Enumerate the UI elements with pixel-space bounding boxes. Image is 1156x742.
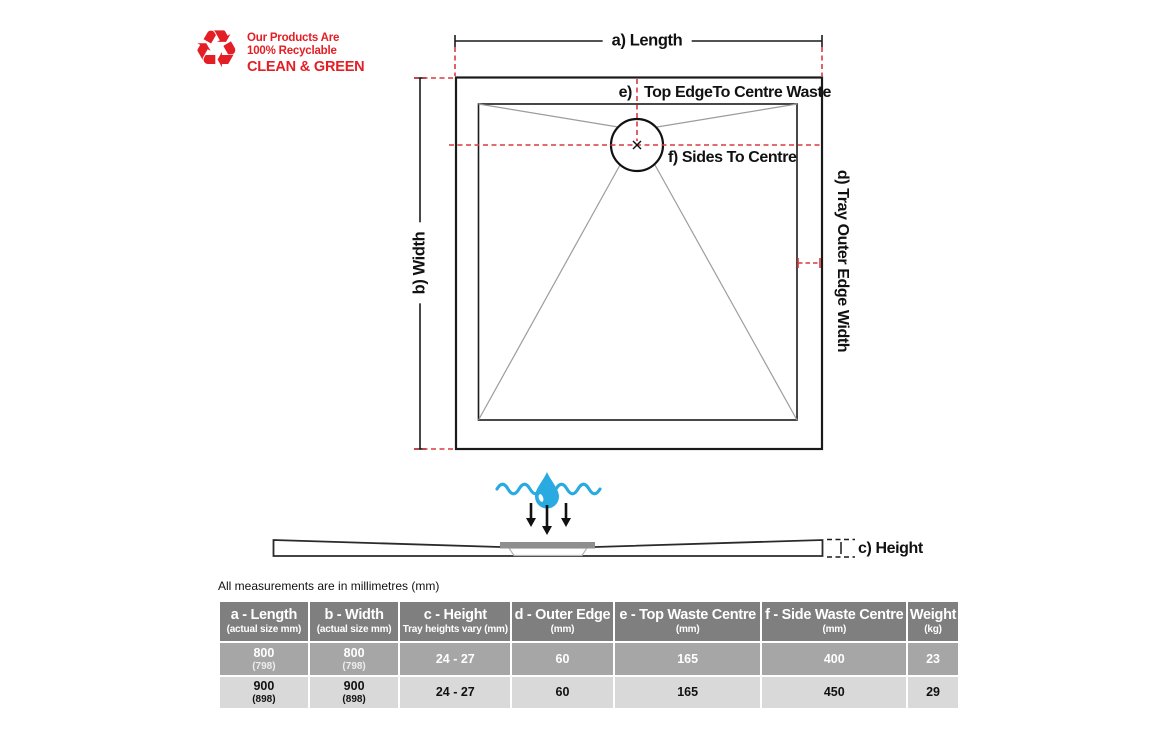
- cell-width-800: 800 (798): [309, 642, 400, 676]
- shower-tray-spec-sheet: ♻ Our Products Are 100% Recyclable CLEAN…: [0, 0, 1156, 742]
- waste-sump-outline: [509, 548, 587, 556]
- label-f-sides-to-centre: f) Sides To Centre: [668, 149, 797, 167]
- table-row-900: 900 (898) 900 (898) 24 - 27 60 165 450: [219, 676, 959, 709]
- col-header-weight: Weight (kg): [907, 601, 959, 642]
- cell-height-800: 24 - 27: [399, 642, 511, 676]
- recycle-claim-text: Our Products Are 100% Recyclable CLEAN &…: [247, 32, 364, 75]
- label-c-height: c) Height: [858, 540, 923, 558]
- waste-cover-bar: [500, 542, 595, 549]
- recycle-line-2: 100% Recyclable: [247, 45, 364, 58]
- label-d-tray-outer-edge-width: d) Tray Outer Edge Width: [833, 170, 851, 352]
- recycling-symbol-icon: ♻: [193, 24, 240, 76]
- label-e-top-edge-to-centre-waste: Top EdgeTo Centre Waste: [644, 84, 831, 102]
- col-header-b-width: b - Width (actual size mm): [309, 601, 400, 642]
- cell-weight-800: 23: [907, 642, 959, 676]
- cell-top-waste-900: 165: [614, 676, 762, 709]
- col-header-c-height: c - Height Tray heights vary (mm): [399, 601, 511, 642]
- cell-weight-900: 29: [907, 676, 959, 709]
- label-a-length: a) Length: [603, 32, 692, 51]
- height-measure-bracket: [827, 540, 855, 558]
- table-row-800: 800 (798) 800 (798) 24 - 27 60 165 400: [219, 642, 959, 676]
- cell-length-800: 800 (798): [219, 642, 309, 676]
- col-header-e-top-waste-centre: e - Top Waste Centre (mm): [614, 601, 762, 642]
- cell-side-waste-800: 400: [761, 642, 907, 676]
- col-header-d-outer-edge: d - Outer Edge (mm): [511, 601, 614, 642]
- cell-outer-edge-900: 60: [511, 676, 614, 709]
- cell-length-900: 900 (898): [219, 676, 309, 709]
- cell-outer-edge-800: 60: [511, 642, 614, 676]
- recycle-line-1: Our Products Are: [247, 32, 364, 45]
- cell-height-900: 24 - 27: [399, 676, 511, 709]
- col-header-a-length: a - Length (actual size mm): [219, 601, 309, 642]
- col-header-f-side-waste-centre: f - Side Waste Centre (mm): [761, 601, 907, 642]
- cell-width-900: 900 (898): [309, 676, 400, 709]
- label-e-prefix: e): [612, 84, 632, 102]
- table-header-row: a - Length (actual size mm) b - Width (a…: [219, 601, 959, 642]
- label-b-width: b) Width: [411, 223, 430, 304]
- recycle-line-3: CLEAN & GREEN: [247, 59, 364, 76]
- cell-top-waste-800: 165: [614, 642, 762, 676]
- measurements-note: All measurements are in millimetres (mm): [218, 579, 439, 593]
- dimensions-table: a - Length (actual size mm) b - Width (a…: [218, 600, 960, 710]
- cell-side-waste-900: 450: [761, 676, 907, 709]
